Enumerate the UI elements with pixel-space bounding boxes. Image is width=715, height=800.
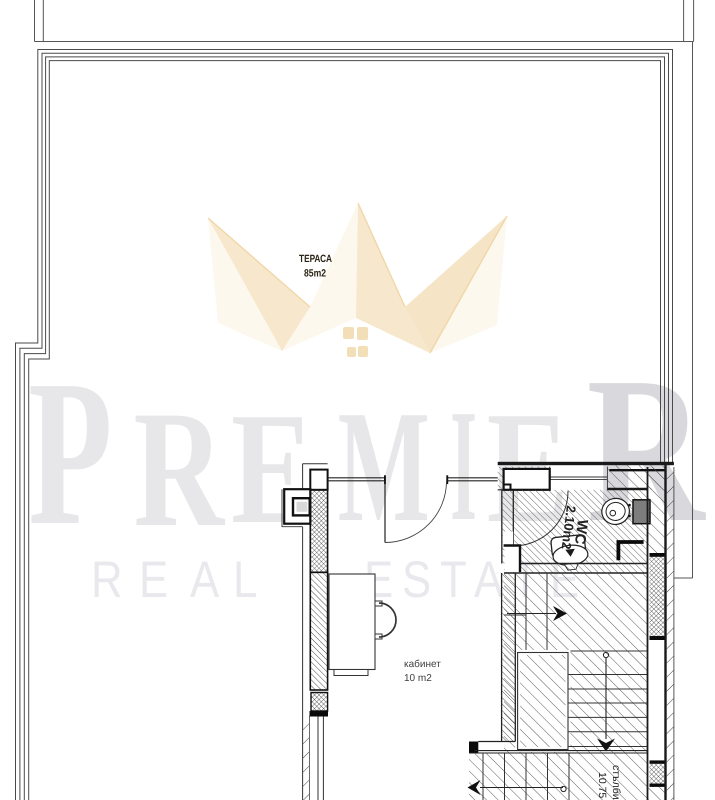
- svg-text:M: M: [338, 377, 430, 555]
- svg-text:10 m2: 10 m2: [404, 673, 432, 684]
- svg-text:S: S: [402, 550, 431, 608]
- svg-text:кабинет: кабинет: [404, 659, 441, 670]
- svg-text:P: P: [28, 338, 112, 569]
- svg-text:R: R: [91, 550, 123, 608]
- svg-text:стълбище: стълбище: [610, 765, 622, 800]
- svg-text:E: E: [139, 550, 168, 608]
- svg-text:I: I: [450, 376, 477, 554]
- svg-text:T: T: [440, 550, 467, 608]
- svg-text:E: E: [231, 379, 313, 557]
- svg-text:R: R: [134, 377, 226, 562]
- svg-text:10.75: 10.75: [596, 772, 608, 798]
- svg-text:ТЕРАСА: ТЕРАСА: [299, 253, 332, 265]
- svg-text:L: L: [233, 550, 257, 608]
- svg-text:85m2: 85m2: [304, 268, 326, 280]
- svg-text:A: A: [474, 550, 504, 608]
- svg-text:A: A: [190, 550, 220, 608]
